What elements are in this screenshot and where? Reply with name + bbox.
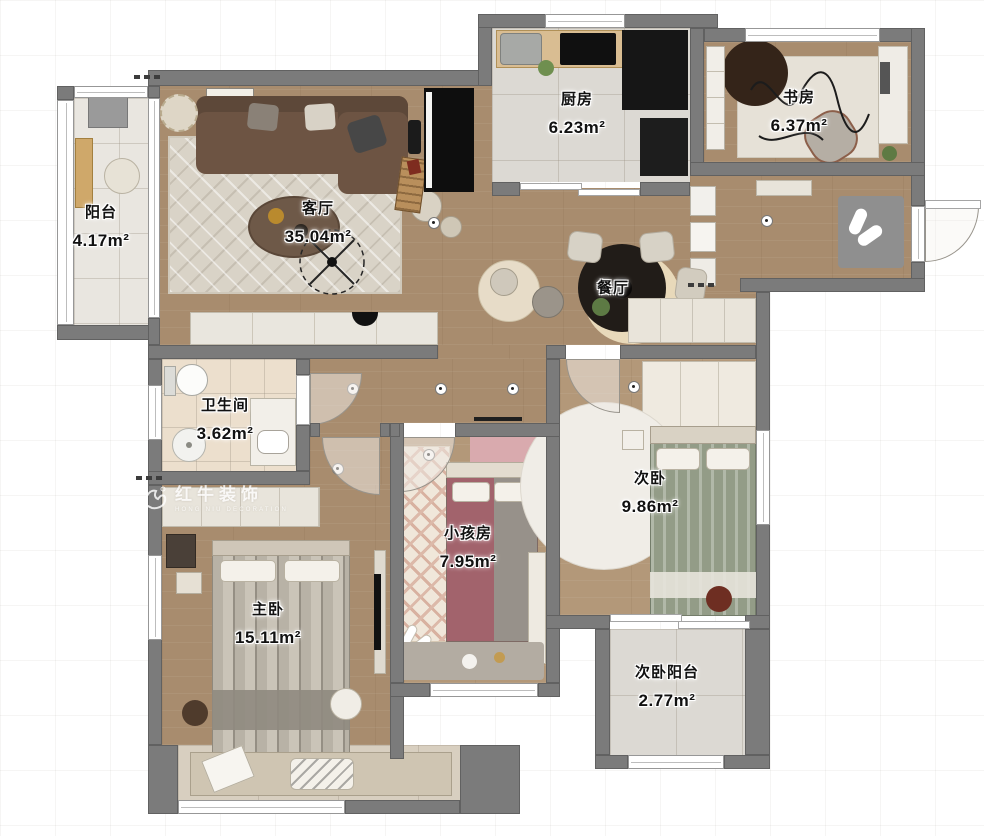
bathroom-sink bbox=[257, 430, 289, 454]
wall-study-bottom bbox=[690, 162, 925, 176]
wall-balcony-pier bbox=[57, 86, 74, 100]
master-left-window bbox=[148, 555, 162, 640]
wall-bathroom-right-bottom bbox=[296, 425, 310, 471]
wall-balcony-divider-pier-bottom bbox=[148, 318, 160, 345]
balcony2-bottom-window bbox=[628, 755, 724, 769]
kitchen-sink bbox=[500, 33, 542, 65]
dining-chair-1 bbox=[566, 230, 603, 264]
study-plant bbox=[882, 146, 897, 161]
kids-pillow-1 bbox=[452, 482, 490, 502]
room-name: 次卧阳台 bbox=[635, 661, 699, 682]
brand-name: 红牛装饰 bbox=[175, 485, 263, 504]
master-nightstand bbox=[176, 572, 202, 594]
room-name: 次卧 bbox=[622, 467, 679, 488]
second-bedroom-pillow-2 bbox=[706, 448, 750, 470]
dining-stool bbox=[532, 286, 564, 318]
wall-dining-second-b bbox=[620, 345, 756, 359]
wall-master-kids bbox=[390, 423, 404, 683]
room-name: 小孩房 bbox=[440, 522, 497, 543]
room-label-dining: 餐厅 bbox=[597, 277, 629, 298]
wall-kitchen-bottom-b bbox=[640, 182, 690, 196]
room-area: 6.37m² bbox=[771, 116, 828, 136]
room-label-study: 书房 6.37m² bbox=[771, 86, 828, 136]
room-name: 主卧 bbox=[235, 598, 301, 619]
side-table-small bbox=[440, 216, 462, 238]
master-headboard bbox=[212, 540, 350, 556]
bay-pillow-zigzag bbox=[290, 758, 354, 790]
room-area: 2.77m² bbox=[635, 691, 699, 711]
wall-bay-bottom bbox=[345, 800, 460, 814]
balcony-left-window bbox=[57, 100, 74, 325]
kids-mat-toy-white bbox=[462, 654, 477, 669]
entry-door-opening bbox=[911, 206, 925, 262]
master-throw-blanket bbox=[212, 690, 350, 730]
bathroom-door-leaf bbox=[296, 375, 310, 425]
room-area: 35.04m² bbox=[285, 227, 352, 247]
wall-kids-top-a bbox=[390, 423, 400, 437]
balcony2-slider-panel-1 bbox=[610, 614, 682, 622]
room-label-balcony: 阳台 4.17m² bbox=[73, 201, 130, 251]
wall-break-mark bbox=[688, 283, 714, 287]
room-name: 客厅 bbox=[285, 197, 352, 218]
wall-balcony2-bottom-a bbox=[595, 755, 628, 769]
study-desk bbox=[878, 46, 908, 144]
entry-console-table bbox=[756, 180, 812, 196]
coffee-table-bowl-gold bbox=[268, 208, 284, 224]
sofa-pillow-gray bbox=[247, 103, 280, 132]
dining-side-chair bbox=[490, 268, 518, 296]
wall-kids-bottom-b bbox=[538, 683, 560, 697]
spotlight-marker bbox=[435, 383, 447, 395]
wall-master-door-b bbox=[380, 423, 390, 437]
room-name: 厨房 bbox=[549, 88, 606, 109]
spotlight-marker bbox=[761, 215, 773, 227]
kids-bottom-window bbox=[430, 683, 538, 697]
second-bedroom-throw bbox=[650, 572, 756, 598]
kitchen-slider-panel-1 bbox=[520, 183, 582, 190]
room-area: 4.17m² bbox=[73, 231, 130, 251]
room-label-kitchen: 厨房 6.23m² bbox=[549, 88, 606, 138]
brand-bull-icon bbox=[142, 485, 168, 516]
wall-kids-second bbox=[546, 359, 560, 683]
room-name: 卫生间 bbox=[197, 394, 254, 415]
study-shelf bbox=[706, 46, 725, 150]
dining-chair-2 bbox=[639, 230, 676, 263]
wall-living-bottom bbox=[148, 345, 438, 359]
pouf bbox=[160, 94, 198, 132]
second-bedroom-wardrobe-upper bbox=[628, 298, 756, 343]
piano-bench bbox=[408, 120, 421, 154]
wall-balcony2-left bbox=[595, 629, 610, 755]
second-bedroom-nightstand bbox=[622, 430, 644, 450]
balcony-cabinet bbox=[75, 138, 93, 208]
wall-top-living bbox=[148, 70, 480, 86]
balcony2-slider-panel-2 bbox=[678, 621, 750, 629]
room-label-master-bedroom: 主卧 15.11m² bbox=[235, 598, 301, 648]
master-chair bbox=[330, 688, 362, 720]
study-desk-monitor bbox=[880, 62, 890, 94]
kitchen-slider-panel-2 bbox=[578, 189, 640, 196]
wall-study-right bbox=[911, 28, 925, 206]
dining-plant bbox=[592, 298, 610, 316]
shower-head-center bbox=[186, 442, 192, 448]
wall-balcony-bottom bbox=[57, 325, 150, 340]
kitchen-tall-unit bbox=[640, 118, 688, 176]
second-bedroom-headboard bbox=[650, 426, 756, 444]
sofa-pillow-white bbox=[304, 103, 336, 131]
wall-bathroom-right-top bbox=[296, 359, 310, 375]
wall-bay-right bbox=[460, 745, 520, 814]
master-tv bbox=[374, 574, 381, 650]
master-dresser bbox=[166, 534, 196, 568]
wall-kitchen-bottom-a bbox=[492, 182, 520, 196]
balcony-top-window bbox=[74, 86, 148, 98]
passage-floor bbox=[438, 345, 555, 359]
room-area: 6.23m² bbox=[549, 118, 606, 138]
kids-mat-toy-gold bbox=[494, 652, 505, 663]
room-label-second-balcony: 次卧阳台 2.77m² bbox=[635, 661, 699, 711]
wall-balcony2-bottom-b bbox=[724, 755, 770, 769]
pantry-shelf-box-1 bbox=[690, 186, 716, 216]
spotlight-marker bbox=[428, 217, 440, 229]
wall-break-mark bbox=[134, 75, 160, 79]
living-balcony-slider bbox=[148, 98, 160, 318]
wall-entry-bottom bbox=[740, 278, 925, 292]
master-pillow-2 bbox=[284, 560, 340, 582]
bay-bottom-window bbox=[178, 800, 345, 814]
second-bedroom-pouf bbox=[706, 586, 732, 612]
second-bedroom-right-window bbox=[756, 430, 770, 525]
wall-dining-second-a bbox=[546, 345, 566, 359]
wall-balcony-divider-pier-top bbox=[148, 86, 160, 98]
wall-balcony2-right bbox=[745, 629, 770, 755]
spotlight-marker bbox=[507, 383, 519, 395]
spotlight-marker bbox=[628, 381, 640, 393]
wall-second-bottom-a bbox=[546, 615, 610, 629]
toilet-bowl bbox=[176, 364, 208, 396]
room-name: 阳台 bbox=[73, 201, 130, 222]
study-top-window bbox=[745, 28, 880, 42]
wall-kids-top-b bbox=[455, 423, 560, 437]
second-bedroom-wardrobe bbox=[642, 361, 756, 427]
tv-cabinet bbox=[190, 312, 438, 345]
wall-kids-bottom-a bbox=[390, 683, 430, 697]
room-area: 7.95m² bbox=[440, 552, 497, 572]
red-decor-item bbox=[407, 159, 422, 175]
kids-curtain-rail bbox=[474, 417, 522, 421]
room-label-second-bedroom: 次卧 9.86m² bbox=[622, 467, 679, 517]
room-label-bathroom: 卫生间 3.62m² bbox=[197, 394, 254, 444]
toilet-tank bbox=[164, 366, 176, 396]
wall-study-left bbox=[690, 28, 704, 176]
balcony-storage-box bbox=[88, 94, 128, 128]
wall-master-door-a bbox=[310, 423, 320, 437]
master-pouf bbox=[182, 700, 208, 726]
brand-subtitle: HONG NIU DECORATION bbox=[175, 507, 288, 514]
room-area: 15.11m² bbox=[235, 628, 301, 648]
piano-keys bbox=[426, 92, 432, 188]
room-label-living: 客厅 35.04m² bbox=[285, 197, 352, 247]
kitchen-top-window bbox=[545, 14, 625, 28]
wall-bay-left bbox=[148, 745, 178, 814]
room-label-kids-room: 小孩房 7.95m² bbox=[440, 522, 497, 572]
bathroom-left-window bbox=[148, 385, 162, 440]
pantry-shelf-box-2 bbox=[690, 222, 716, 252]
room-area: 9.86m² bbox=[622, 497, 679, 517]
room-name: 书房 bbox=[771, 86, 828, 107]
room-name: 餐厅 bbox=[597, 277, 629, 298]
brand-watermark: 红牛装饰 HONG NIU DECORATION bbox=[142, 478, 338, 522]
kitchen-plant bbox=[538, 60, 554, 76]
brand-text: 红牛装饰 HONG NIU DECORATION bbox=[175, 486, 288, 513]
fridge bbox=[622, 30, 688, 110]
master-pillow-1 bbox=[220, 560, 276, 582]
entry-door-arc bbox=[925, 206, 979, 262]
kitchen-stove bbox=[560, 33, 616, 65]
room-area: 3.62m² bbox=[197, 424, 254, 444]
entry-door-leaf bbox=[925, 200, 981, 209]
balcony-chair bbox=[104, 158, 140, 194]
floor-plan-canvas: { "brand": { "name": "红牛装饰", "subtitle":… bbox=[0, 0, 984, 836]
